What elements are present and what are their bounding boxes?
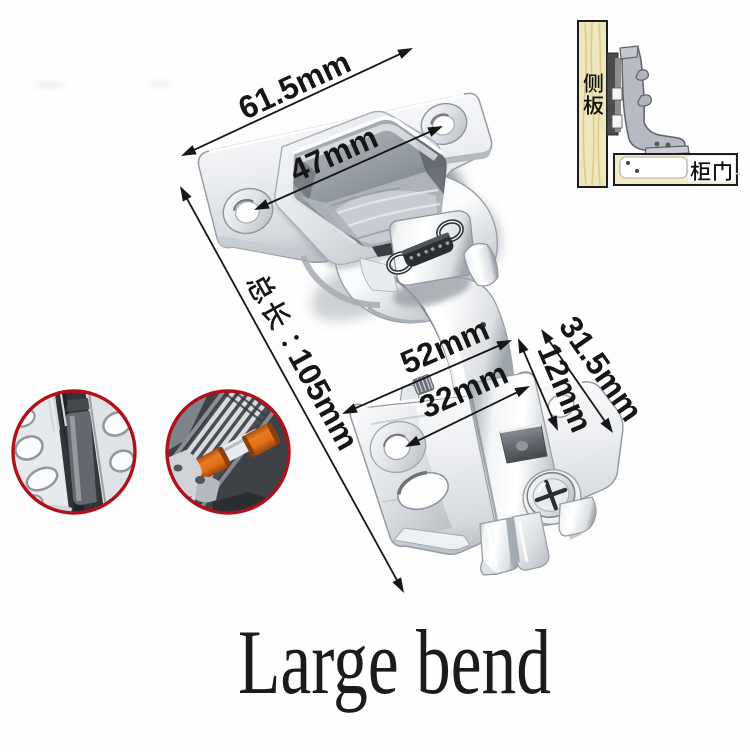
svg-text:Large bend: Large bend — [238, 611, 551, 713]
